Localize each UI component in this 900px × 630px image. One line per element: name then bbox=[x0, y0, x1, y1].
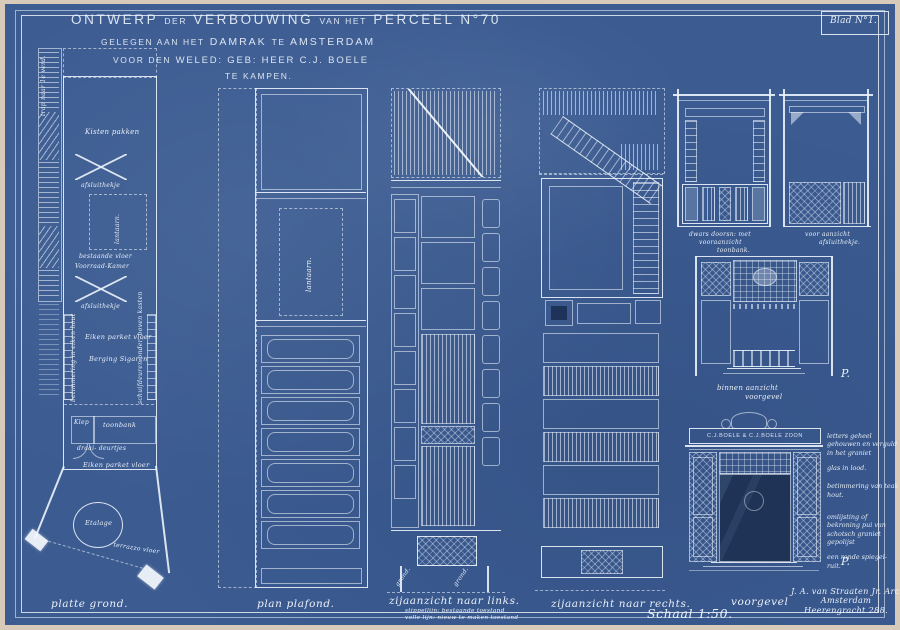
ceiling-coffer bbox=[261, 428, 360, 456]
line bbox=[255, 198, 366, 199]
small-frame bbox=[545, 300, 573, 326]
label-berging: Berging Sigaren bbox=[89, 356, 148, 363]
hatch bbox=[543, 91, 659, 115]
toonbank-caption-3: toonbank. bbox=[717, 248, 750, 255]
corner-bracket bbox=[791, 112, 804, 125]
pilaster bbox=[689, 452, 717, 562]
existing-outline-dashed bbox=[218, 88, 257, 588]
hekje-caption-2: afsluithekje. bbox=[819, 240, 860, 247]
leg bbox=[487, 566, 489, 592]
lattice-panel bbox=[789, 182, 841, 224]
legend-note-2: volle lijn: nieuw te maken toestand bbox=[405, 615, 518, 622]
column-base bbox=[25, 529, 49, 552]
stair-hatch bbox=[39, 162, 59, 224]
title-word: DAMRAK bbox=[210, 36, 267, 48]
pilaster-panel bbox=[797, 517, 817, 557]
ground-line bbox=[535, 590, 665, 591]
base-line bbox=[785, 226, 871, 227]
ladder-post bbox=[685, 120, 697, 182]
corner-bracket bbox=[848, 112, 861, 125]
label-betimmering: betimmering in eiken hout bbox=[71, 306, 78, 402]
p-mark-1: P. bbox=[841, 368, 850, 381]
small-frame bbox=[635, 300, 661, 324]
line bbox=[255, 320, 366, 321]
panel bbox=[482, 301, 500, 330]
pilaster-ornament bbox=[799, 262, 829, 296]
round-mirror bbox=[744, 491, 764, 511]
label-afsluithekje-1: afsluithekje bbox=[81, 183, 120, 190]
ceiling-coffer bbox=[261, 490, 360, 518]
ceiling-coffer bbox=[261, 397, 360, 425]
pilaster-panel bbox=[701, 300, 731, 364]
dot-band bbox=[733, 304, 795, 309]
stair-hatch bbox=[39, 304, 59, 396]
beam bbox=[783, 100, 869, 101]
title-word: GELEGEN AAN HET bbox=[101, 37, 205, 47]
panel bbox=[543, 432, 659, 462]
sheet-number: Blad N°1. bbox=[830, 16, 877, 26]
label-eiken-parket-2: Eiken parket vloer bbox=[83, 462, 150, 469]
cartouche bbox=[417, 536, 477, 566]
ladder-strip bbox=[633, 182, 659, 294]
panel bbox=[482, 267, 500, 296]
panel bbox=[549, 186, 623, 290]
splay-line-left bbox=[34, 466, 65, 539]
counter bbox=[682, 184, 768, 224]
label-trap: trap naar 1e verd. bbox=[41, 56, 48, 116]
post bbox=[867, 89, 869, 227]
crest-ornament bbox=[731, 412, 767, 429]
ladder-post bbox=[753, 120, 765, 182]
caption-plan-plafond: plan plafond. bbox=[257, 598, 335, 610]
line bbox=[391, 180, 501, 181]
slat-panel bbox=[421, 446, 475, 526]
title-word: TE KAMPEN. bbox=[225, 71, 292, 81]
title-word: DER bbox=[164, 16, 187, 26]
beam bbox=[673, 94, 775, 96]
gate-symbol bbox=[75, 154, 127, 180]
base-line bbox=[727, 368, 801, 369]
panel bbox=[543, 498, 659, 528]
counter-panel bbox=[702, 187, 715, 221]
gevel-notes: letters geheel gehouwen en verguld in he… bbox=[827, 432, 900, 577]
architect-address: Heerengracht 288. bbox=[791, 606, 900, 615]
caption-voorgevel: voorgevel bbox=[731, 596, 788, 608]
pilaster-ornament bbox=[701, 262, 731, 296]
sign-band: C.J.BOELE & C.J.BOELE ZOON bbox=[689, 428, 821, 444]
wall-cases bbox=[147, 314, 156, 400]
stair-hatch bbox=[39, 270, 59, 298]
title-word: TE bbox=[272, 37, 286, 47]
hatch bbox=[621, 144, 659, 170]
caption-zijaanzicht-links: zijaanzicht naar links. bbox=[389, 595, 520, 607]
pilaster bbox=[793, 452, 821, 562]
counter-panel bbox=[752, 187, 765, 221]
top-line bbox=[695, 256, 833, 257]
panel-stack bbox=[541, 330, 661, 542]
panel bbox=[482, 403, 500, 432]
ceiling-coffer bbox=[261, 459, 360, 487]
title-word: VAN HET bbox=[320, 16, 367, 26]
beam bbox=[677, 100, 771, 101]
label-bestaande-vloer: bestaande vloer bbox=[79, 254, 132, 261]
gevel-note: omlijsting of bekroning pui van schotsch… bbox=[827, 513, 900, 546]
label-voorraad-kamer: Voorraad-Kamer bbox=[75, 264, 129, 271]
binnen-caption-2: voorgevel bbox=[745, 393, 782, 401]
architect-block: J. A. van Straaten Jr. Arch. Amsterdam H… bbox=[791, 587, 900, 615]
slat-panel bbox=[843, 182, 865, 224]
legend-note-1: stippellijn: bestaande toestand bbox=[405, 608, 505, 615]
label-kisten: Kisten pakken bbox=[85, 128, 139, 136]
panel bbox=[421, 196, 475, 238]
ceiling-coffer bbox=[261, 335, 360, 363]
panel bbox=[543, 333, 659, 363]
pilaster-panel bbox=[799, 300, 829, 364]
step-line bbox=[689, 570, 819, 571]
coffer-stack bbox=[259, 332, 362, 566]
label-etalage: Etalage bbox=[85, 520, 112, 527]
panel bbox=[482, 233, 500, 262]
base-line bbox=[723, 373, 805, 374]
cornice bbox=[689, 449, 819, 450]
gate-symbol bbox=[75, 276, 127, 302]
pilaster-panel bbox=[693, 457, 713, 515]
gevel-note: een ronde spiegel- ruit. bbox=[827, 553, 900, 570]
elev-top-block bbox=[391, 88, 501, 178]
gevel-note: letters geheel gehouwen en verguld in he… bbox=[827, 432, 900, 457]
post bbox=[695, 256, 697, 376]
blueprint-sheet: Blad N°1. ONTWERP DER VERBOUWING VAN HET… bbox=[5, 4, 895, 625]
ground-line bbox=[387, 592, 505, 593]
sign-text: C.J.BOELE & C.J.BOELE ZOON bbox=[707, 433, 803, 439]
binnen-caption-1: binnen aanzicht bbox=[717, 384, 778, 392]
label-schuifdeuren: schuifdeuren onder, boven kasten bbox=[138, 304, 145, 404]
plan-top-dashed bbox=[63, 48, 157, 78]
label-klep: Klep bbox=[74, 420, 89, 427]
caption-platte-grond: platte grond. bbox=[51, 598, 128, 610]
post bbox=[677, 89, 679, 227]
gevel-note: glas in lood. bbox=[827, 464, 900, 472]
p-mark-2: P. bbox=[841, 556, 850, 569]
sheet-number-box: Blad N°1. bbox=[821, 11, 889, 35]
panel bbox=[394, 427, 416, 461]
doorway-opening bbox=[719, 474, 791, 562]
counter-panel bbox=[719, 187, 732, 221]
stair-fan bbox=[39, 112, 59, 160]
transom-leadglass bbox=[719, 452, 791, 474]
panel bbox=[421, 242, 475, 284]
panel bbox=[482, 199, 500, 228]
counter-panel bbox=[685, 187, 698, 221]
line bbox=[391, 187, 501, 188]
hekje-caption-1: voor aanzicht bbox=[805, 232, 850, 239]
title-word: ONTWERP bbox=[71, 12, 158, 27]
panel-column-center bbox=[421, 194, 475, 526]
dark-inset bbox=[551, 306, 567, 320]
title-line-1: ONTWERP DER VERBOUWING VAN HET PERCEEL N… bbox=[71, 12, 501, 27]
gevel-note: betimmering van teak hout. bbox=[827, 482, 900, 499]
panel-column-left bbox=[391, 194, 419, 528]
stair-fan bbox=[39, 226, 59, 268]
label-lantaarn-plan: lantaarn. bbox=[115, 200, 122, 244]
label-toonbank: toonbank bbox=[103, 422, 136, 429]
scale-label: Schaal 1:50. bbox=[647, 606, 733, 621]
panel bbox=[421, 288, 475, 330]
panel bbox=[394, 351, 416, 385]
partition-line bbox=[64, 404, 154, 405]
panel bbox=[394, 275, 416, 309]
toonbank-caption-1: dwars doorsn: met bbox=[689, 232, 751, 239]
panel bbox=[394, 199, 416, 233]
panel bbox=[482, 437, 500, 466]
small-frame bbox=[577, 303, 631, 324]
line bbox=[255, 326, 366, 327]
line bbox=[391, 530, 501, 531]
panel bbox=[543, 465, 659, 495]
panel bbox=[394, 389, 416, 423]
label-terrazzo: terrazzo vloer bbox=[113, 542, 160, 556]
label-grond-1: grond. bbox=[395, 567, 413, 589]
panel bbox=[543, 399, 659, 429]
label-draaideurtjes: draai- deurtjes bbox=[77, 446, 126, 453]
transom-ornament bbox=[753, 268, 777, 286]
title-word: VERBOUWING bbox=[193, 12, 313, 27]
slat-panel bbox=[421, 334, 475, 424]
ornament-band bbox=[421, 426, 475, 444]
dashed-line bbox=[539, 174, 663, 175]
post bbox=[783, 89, 785, 227]
ornament bbox=[581, 550, 623, 574]
title-word: AMSTERDAM bbox=[290, 36, 375, 48]
lintel bbox=[685, 108, 765, 117]
label-afsluithekje-2: afsluithekje bbox=[81, 304, 120, 311]
panel bbox=[482, 335, 500, 364]
title-word: C.J. BOELE bbox=[300, 55, 369, 66]
blueprint-page: Blad N°1. ONTWERP DER VERBOUWING VAN HET… bbox=[0, 0, 900, 630]
panel bbox=[394, 465, 416, 499]
step-line bbox=[711, 562, 797, 563]
line bbox=[255, 192, 366, 193]
panel bbox=[482, 369, 500, 398]
splay-line-right bbox=[155, 466, 170, 573]
title-word: WELED: GEB: HEER bbox=[176, 55, 296, 66]
panel bbox=[394, 313, 416, 347]
panel bbox=[394, 237, 416, 271]
counter-panel bbox=[735, 187, 748, 221]
panel-column-right bbox=[479, 194, 503, 526]
title-line-2: GELEGEN AAN HET DAMRAK TE AMSTERDAM bbox=[101, 36, 375, 48]
ceiling-top-panel bbox=[261, 94, 362, 190]
title-word: PERCEEL N°70 bbox=[373, 12, 501, 27]
label-eiken-parket-1: Eiken parket vloer bbox=[85, 334, 152, 341]
label-lantaarn-ceiling: lantaarn. bbox=[305, 232, 313, 292]
toonbank-caption-2: vooraanzicht bbox=[699, 240, 742, 247]
balustrade bbox=[733, 350, 795, 367]
pilaster-panel bbox=[797, 457, 817, 515]
step-line bbox=[703, 566, 803, 567]
beam bbox=[779, 94, 873, 96]
ceiling-bottom-panel bbox=[261, 568, 362, 584]
panel bbox=[543, 366, 659, 396]
pilaster-panel bbox=[693, 517, 713, 557]
ceiling-coffer bbox=[261, 521, 360, 549]
cornice bbox=[685, 445, 823, 447]
post bbox=[769, 89, 771, 227]
label-grond-2: grond. bbox=[453, 567, 471, 589]
ceiling-coffer bbox=[261, 366, 360, 394]
base-line bbox=[678, 226, 770, 227]
post bbox=[831, 256, 833, 376]
title-line-4: TE KAMPEN. bbox=[225, 71, 292, 81]
